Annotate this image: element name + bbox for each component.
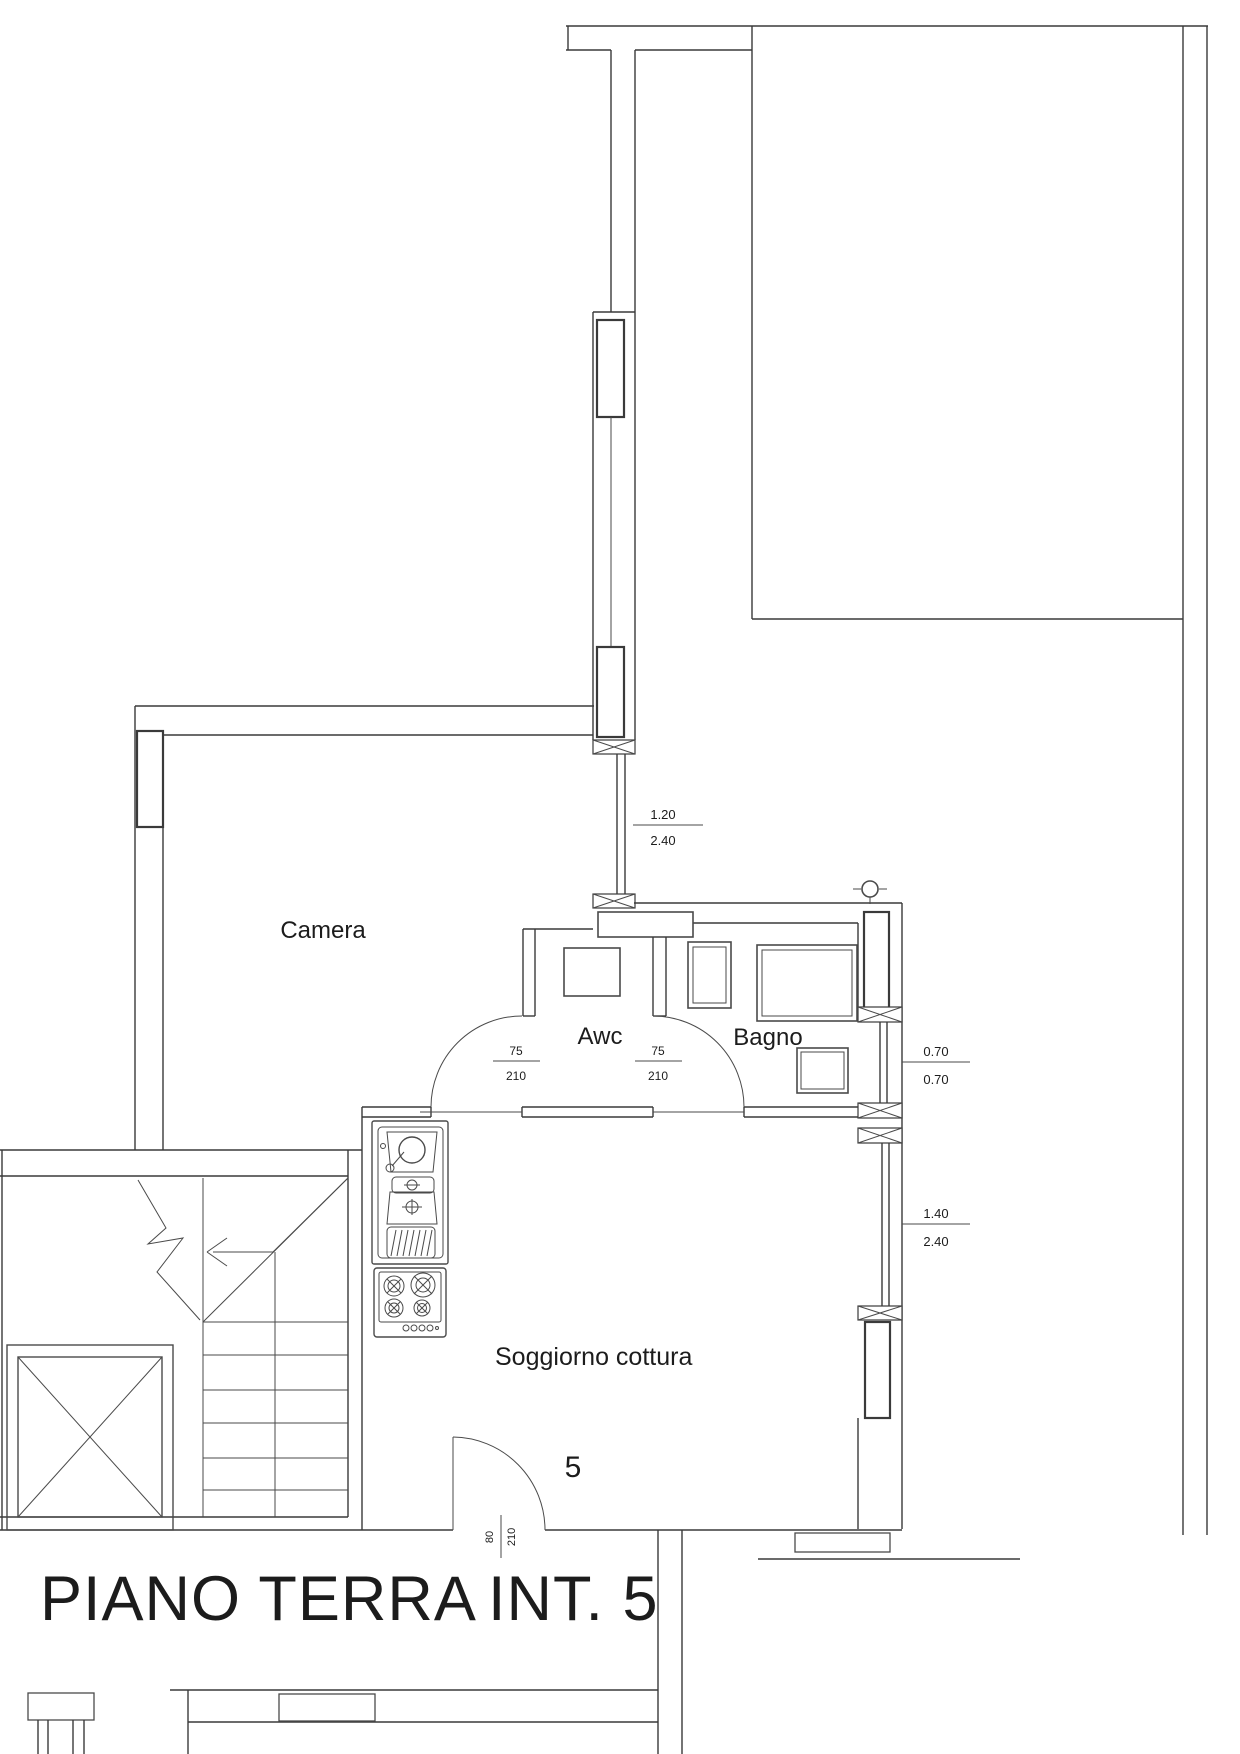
awc-door-left-height: 210 [506, 1069, 526, 1083]
north-window-wall [593, 312, 635, 908]
french-window-height: 2.40 [650, 833, 675, 848]
stair-break-line [138, 1180, 200, 1320]
french-window-width: 1.20 [650, 807, 675, 822]
soggiorno-right-window [865, 1322, 890, 1418]
entrance-door-width: 80 [484, 1531, 496, 1543]
kitchen-stove [374, 1268, 446, 1337]
camera-label: Camera [280, 917, 366, 944]
bagno-window-width: 0.70 [923, 1044, 948, 1059]
awc-door-right-width: 75 [651, 1044, 665, 1058]
bagno-bidet [797, 1048, 848, 1093]
awc-door-left-width: 75 [509, 1044, 523, 1058]
bagno-washer [688, 942, 731, 1008]
bagno-shower [757, 945, 857, 1021]
soggiorno-top-wall [362, 1107, 858, 1117]
unit-number: 5 [565, 1451, 582, 1484]
floor-plan: Camera Awc Bagno Soggiorno cottura 5 1.2… [0, 0, 1240, 1754]
title-interior: INT. 5 [488, 1564, 659, 1634]
wall-pier-x5 [858, 1128, 902, 1143]
bagno-top-window [864, 912, 889, 1008]
right-wall [858, 903, 902, 1529]
soggiorno-window-width: 1.40 [923, 1206, 948, 1221]
awc-label: Awc [578, 1023, 623, 1050]
wall-pier-x3 [858, 1007, 902, 1022]
window-upper [597, 320, 624, 417]
drainer-hatch [391, 1230, 432, 1256]
entrance-door-height: 210 [506, 1528, 518, 1546]
soggiorno-walls [0, 1107, 902, 1530]
awc-cabinet [598, 912, 693, 937]
soggiorno-label: Soggiorno cottura [495, 1343, 692, 1371]
bagno-label: Bagno [733, 1024, 802, 1051]
bagno-window-height: 0.70 [923, 1072, 948, 1087]
wall-pier-x2 [593, 894, 635, 908]
awc-sink [564, 948, 620, 996]
soggiorno-window-height: 2.40 [923, 1234, 948, 1249]
dimension-lines [493, 825, 970, 1558]
top-right-block [752, 26, 1207, 1535]
staircase [0, 1150, 362, 1530]
camera-window [137, 731, 163, 827]
wall-pier-x1 [593, 740, 635, 754]
window-lower [597, 647, 624, 737]
kitchen-sink-unit [372, 1121, 448, 1264]
wall-pier-x4 [858, 1103, 902, 1118]
top-walls [566, 26, 1208, 312]
elevator-shaft [7, 1345, 173, 1530]
lamp-symbol [853, 881, 887, 904]
floor-plan-drawing: Camera Awc Bagno Soggiorno cottura 5 1.2… [0, 0, 1240, 1754]
corridor-wall [658, 1530, 682, 1754]
entrance-door [453, 1437, 545, 1530]
title-floor: PIANO TERRA [40, 1564, 477, 1634]
awc-door-right-height: 210 [648, 1069, 668, 1083]
wall-pier-x6 [858, 1306, 902, 1320]
